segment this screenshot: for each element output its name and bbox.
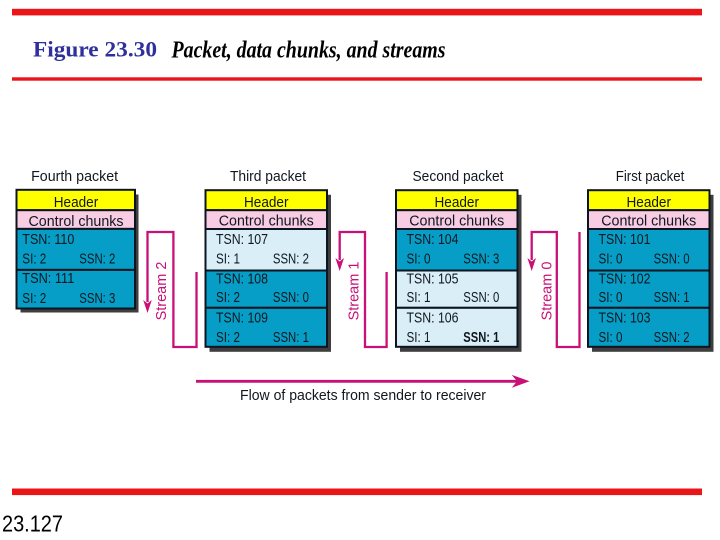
svg-text:Control chunks: Control chunks — [409, 213, 504, 230]
svg-text:TSN: 105: TSN: 105 — [407, 272, 459, 288]
svg-text:SSN: 1: SSN: 1 — [463, 330, 499, 346]
svg-text:TSN: 110: TSN: 110 — [22, 232, 74, 248]
svg-text:Header: Header — [244, 194, 289, 211]
svg-text:SSN: 0: SSN: 0 — [463, 290, 499, 306]
svg-text:SSN: 3: SSN: 3 — [79, 291, 115, 307]
svg-text:Figure 23.30: Figure 23.30 — [33, 37, 157, 62]
svg-text:SI: 1: SI: 1 — [216, 252, 240, 268]
svg-text:Stream 2: Stream 2 — [154, 262, 170, 321]
svg-text:SI: 0: SI: 0 — [599, 252, 623, 268]
svg-text:SSN: 2: SSN: 2 — [79, 252, 115, 268]
svg-text:TSN: 109: TSN: 109 — [216, 311, 268, 327]
svg-text:Control chunks: Control chunks — [601, 213, 696, 230]
svg-text:Header: Header — [435, 194, 480, 211]
svg-text:SI: 2: SI: 2 — [216, 330, 240, 346]
svg-text:SSN: 0: SSN: 0 — [654, 252, 690, 268]
svg-text:SSN: 0: SSN: 0 — [273, 290, 309, 306]
svg-text:SI: 0: SI: 0 — [407, 252, 431, 268]
svg-text:SSN: 2: SSN: 2 — [273, 252, 309, 268]
svg-text:TSN: 103: TSN: 103 — [599, 311, 651, 327]
svg-text:First packet: First packet — [616, 169, 685, 185]
svg-text:TSN: 102: TSN: 102 — [599, 272, 651, 288]
svg-text:Flow of packets from sender to: Flow of packets from sender to receiver — [240, 388, 486, 404]
svg-text:Stream 0: Stream 0 — [540, 262, 556, 321]
svg-text:Fourth packet: Fourth packet — [31, 169, 118, 185]
svg-text:SSN: 1: SSN: 1 — [654, 290, 690, 306]
svg-text:TSN: 101: TSN: 101 — [599, 232, 651, 248]
svg-text:SSN: 3: SSN: 3 — [463, 252, 499, 268]
svg-text:Header: Header — [54, 194, 99, 211]
svg-text:Control chunks: Control chunks — [219, 213, 314, 230]
svg-text:SI: 1: SI: 1 — [407, 290, 431, 306]
svg-text:TSN: 108: TSN: 108 — [216, 272, 268, 288]
svg-text:SI: 0: SI: 0 — [599, 290, 623, 306]
svg-text:SI: 2: SI: 2 — [22, 291, 46, 307]
svg-text:Second packet: Second packet — [413, 169, 504, 185]
svg-text:SI: 2: SI: 2 — [22, 252, 46, 268]
svg-text:Control chunks: Control chunks — [29, 213, 124, 230]
svg-text:TSN: 107: TSN: 107 — [216, 232, 268, 248]
svg-text:SSN: 2: SSN: 2 — [654, 330, 690, 346]
svg-text:SI: 1: SI: 1 — [407, 330, 431, 346]
svg-text:Third packet: Third packet — [230, 169, 306, 185]
svg-text:Header: Header — [627, 194, 672, 211]
svg-text:TSN: 106: TSN: 106 — [407, 311, 459, 327]
svg-text:SI: 0: SI: 0 — [599, 330, 623, 346]
svg-text:23.127: 23.127 — [2, 511, 63, 537]
svg-text:Stream 1: Stream 1 — [347, 262, 363, 321]
svg-text:TSN: 104: TSN: 104 — [407, 232, 459, 248]
svg-text:TSN: 111: TSN: 111 — [22, 271, 74, 287]
svg-text:SI: 2: SI: 2 — [216, 290, 240, 306]
svg-text:Packet, data chunks, and strea: Packet, data chunks, and streams — [171, 37, 446, 63]
svg-text:SSN: 1: SSN: 1 — [273, 330, 309, 346]
